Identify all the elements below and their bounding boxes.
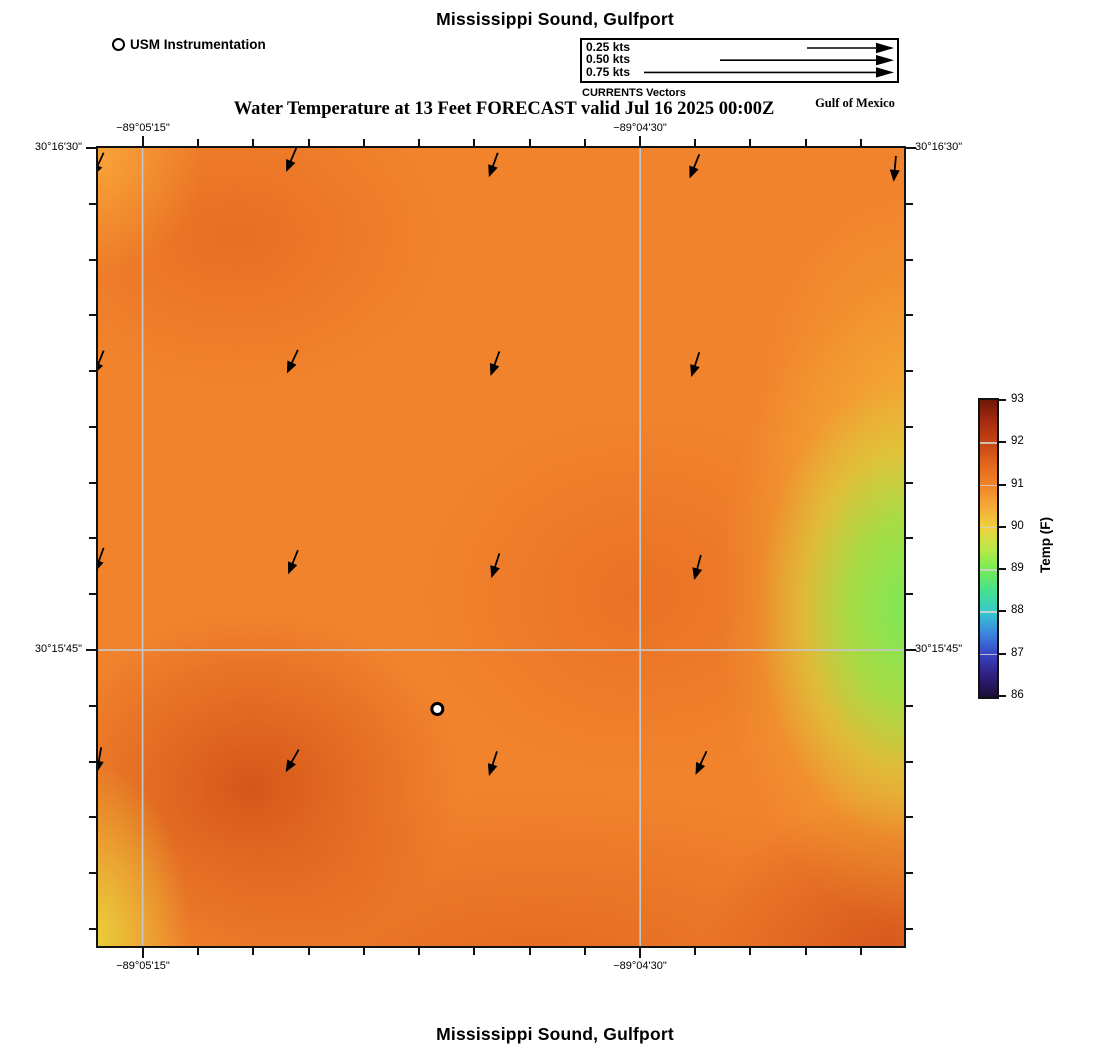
axis-tick: [89, 928, 96, 930]
axis-tick: [473, 139, 475, 146]
colorbar-tick-label: 86: [1011, 689, 1041, 701]
colorbar-tick-label: 92: [1011, 435, 1041, 447]
axis-tick: [906, 649, 916, 651]
current-vector-arrow-icon: [692, 567, 702, 580]
colorbar-tick-label: 90: [1011, 520, 1041, 532]
current-vector-arrow-icon: [288, 561, 297, 574]
lon-tick-label-bottom: −89°05'15": [83, 960, 203, 972]
colorbar-gridline: [980, 485, 997, 487]
axis-tick: [89, 872, 96, 874]
axis-tick: [142, 136, 144, 146]
arrow-head-icon: [876, 67, 894, 77]
axis-tick: [906, 761, 913, 763]
current-vector-arrow-icon: [488, 763, 498, 776]
axis-tick: [906, 537, 913, 539]
colorbar-gridline: [980, 569, 997, 571]
axis-tick: [529, 948, 531, 955]
axis-tick: [473, 948, 475, 955]
axis-tick: [89, 705, 96, 707]
current-vector-arrow-icon: [490, 565, 500, 578]
axis-tick: [89, 203, 96, 205]
currents-legend-arrows: [582, 40, 895, 80]
axis-tick: [584, 948, 586, 955]
axis-tick: [906, 872, 913, 874]
colorbar-tick: [999, 568, 1006, 570]
page-title: Mississippi Sound, Gulfport: [0, 9, 1100, 30]
instrumentation-marker-icon: [112, 38, 125, 51]
axis-tick: [906, 314, 913, 316]
axis-tick: [89, 370, 96, 372]
axis-tick: [418, 948, 420, 955]
axis-tick: [89, 816, 96, 818]
lon-tick-label-top: −89°04'30": [580, 122, 700, 134]
colorbar-tick-label: 87: [1011, 647, 1041, 659]
colorbar-tick: [999, 526, 1006, 528]
axis-tick: [89, 761, 96, 763]
current-vector-arrow-icon: [689, 166, 698, 179]
axis-tick: [89, 426, 96, 428]
colorbar-tick: [999, 653, 1006, 655]
axis-tick: [529, 139, 531, 146]
instrumentation-legend: USM Instrumentation: [112, 37, 266, 52]
axis-tick: [308, 948, 310, 955]
current-vector-arrow-icon: [488, 164, 497, 177]
axis-tick: [363, 139, 365, 146]
current-vector-arrow-icon: [490, 363, 499, 376]
axis-tick: [694, 139, 696, 146]
colorbar-tick: [999, 399, 1006, 401]
axis-tick: [860, 139, 862, 146]
map-overlay: [98, 148, 904, 946]
currents-legend-box: 0.25 kts0.50 kts0.75 kts: [580, 38, 899, 83]
colorbar-tick-label: 93: [1011, 393, 1041, 405]
current-vector-arrow-icon: [98, 760, 104, 773]
axis-tick: [86, 649, 96, 651]
arrow-head-icon: [876, 55, 894, 65]
current-vector-arrow-icon: [286, 759, 296, 772]
axis-tick: [906, 147, 916, 149]
colorbar-title: Temp (F): [1038, 485, 1054, 605]
axis-tick: [805, 948, 807, 955]
axis-tick: [906, 259, 913, 261]
axis-tick: [749, 948, 751, 955]
axis-tick: [252, 948, 254, 955]
axis-tick: [805, 139, 807, 146]
current-vector-arrow-icon: [890, 170, 900, 182]
axis-tick: [89, 482, 96, 484]
axis-tick: [749, 139, 751, 146]
current-vector-line: [98, 153, 104, 168]
axis-tick: [906, 426, 913, 428]
axis-tick: [584, 139, 586, 146]
axis-tick: [906, 816, 913, 818]
axis-tick: [308, 139, 310, 146]
colorbar-tick: [999, 695, 1006, 697]
axis-tick: [89, 259, 96, 261]
axis-tick: [89, 314, 96, 316]
colorbar-tick: [999, 610, 1006, 612]
lat-tick-label-right: 30°15'45": [915, 643, 985, 655]
arrow-head-icon: [876, 43, 894, 53]
axis-tick: [197, 948, 199, 955]
axis-tick: [906, 203, 913, 205]
instrumentation-legend-label: USM Instrumentation: [130, 37, 266, 52]
colorbar-tick: [999, 441, 1006, 443]
current-vector-arrow-icon: [690, 364, 700, 377]
instrumentation-site-marker: [432, 703, 443, 714]
axis-tick: [906, 593, 913, 595]
colorbar-tick: [999, 484, 1006, 486]
footer-title: Mississippi Sound, Gulfport: [0, 1024, 1100, 1045]
colorbar-tick-label: 91: [1011, 478, 1041, 490]
axis-tick: [86, 147, 96, 149]
axis-tick: [89, 593, 96, 595]
lat-tick-label-left: 30°16'30": [16, 141, 82, 153]
axis-tick: [906, 928, 913, 930]
current-vector-arrow-icon: [286, 159, 295, 172]
lon-tick-label-top: −89°05'15": [83, 122, 203, 134]
lat-tick-label-right: 30°16'30": [915, 141, 985, 153]
axis-tick: [89, 537, 96, 539]
axis-tick: [639, 136, 641, 146]
axis-tick: [694, 948, 696, 955]
colorbar-gridline: [980, 611, 997, 613]
lat-tick-label-left: 30°15'45": [16, 643, 82, 655]
colorbar-gridline: [980, 442, 997, 444]
axis-tick: [363, 948, 365, 955]
colorbar-tick-label: 88: [1011, 604, 1041, 616]
axis-tick: [639, 948, 641, 958]
temperature-map: [96, 146, 906, 948]
current-vector-arrow-icon: [98, 559, 104, 572]
axis-tick: [906, 705, 913, 707]
axis-tick: [906, 370, 913, 372]
region-label: Gulf of Mexico: [805, 96, 905, 111]
axis-tick: [906, 482, 913, 484]
colorbar-tick-label: 89: [1011, 562, 1041, 574]
colorbar-gridline: [980, 527, 997, 529]
axis-tick: [197, 139, 199, 146]
axis-tick: [418, 139, 420, 146]
lon-tick-label-bottom: −89°04'30": [580, 960, 700, 972]
currents-legend-caption: CURRENTS Vectors: [582, 87, 686, 99]
axis-tick: [252, 139, 254, 146]
axis-tick: [860, 948, 862, 955]
axis-tick: [142, 948, 144, 958]
